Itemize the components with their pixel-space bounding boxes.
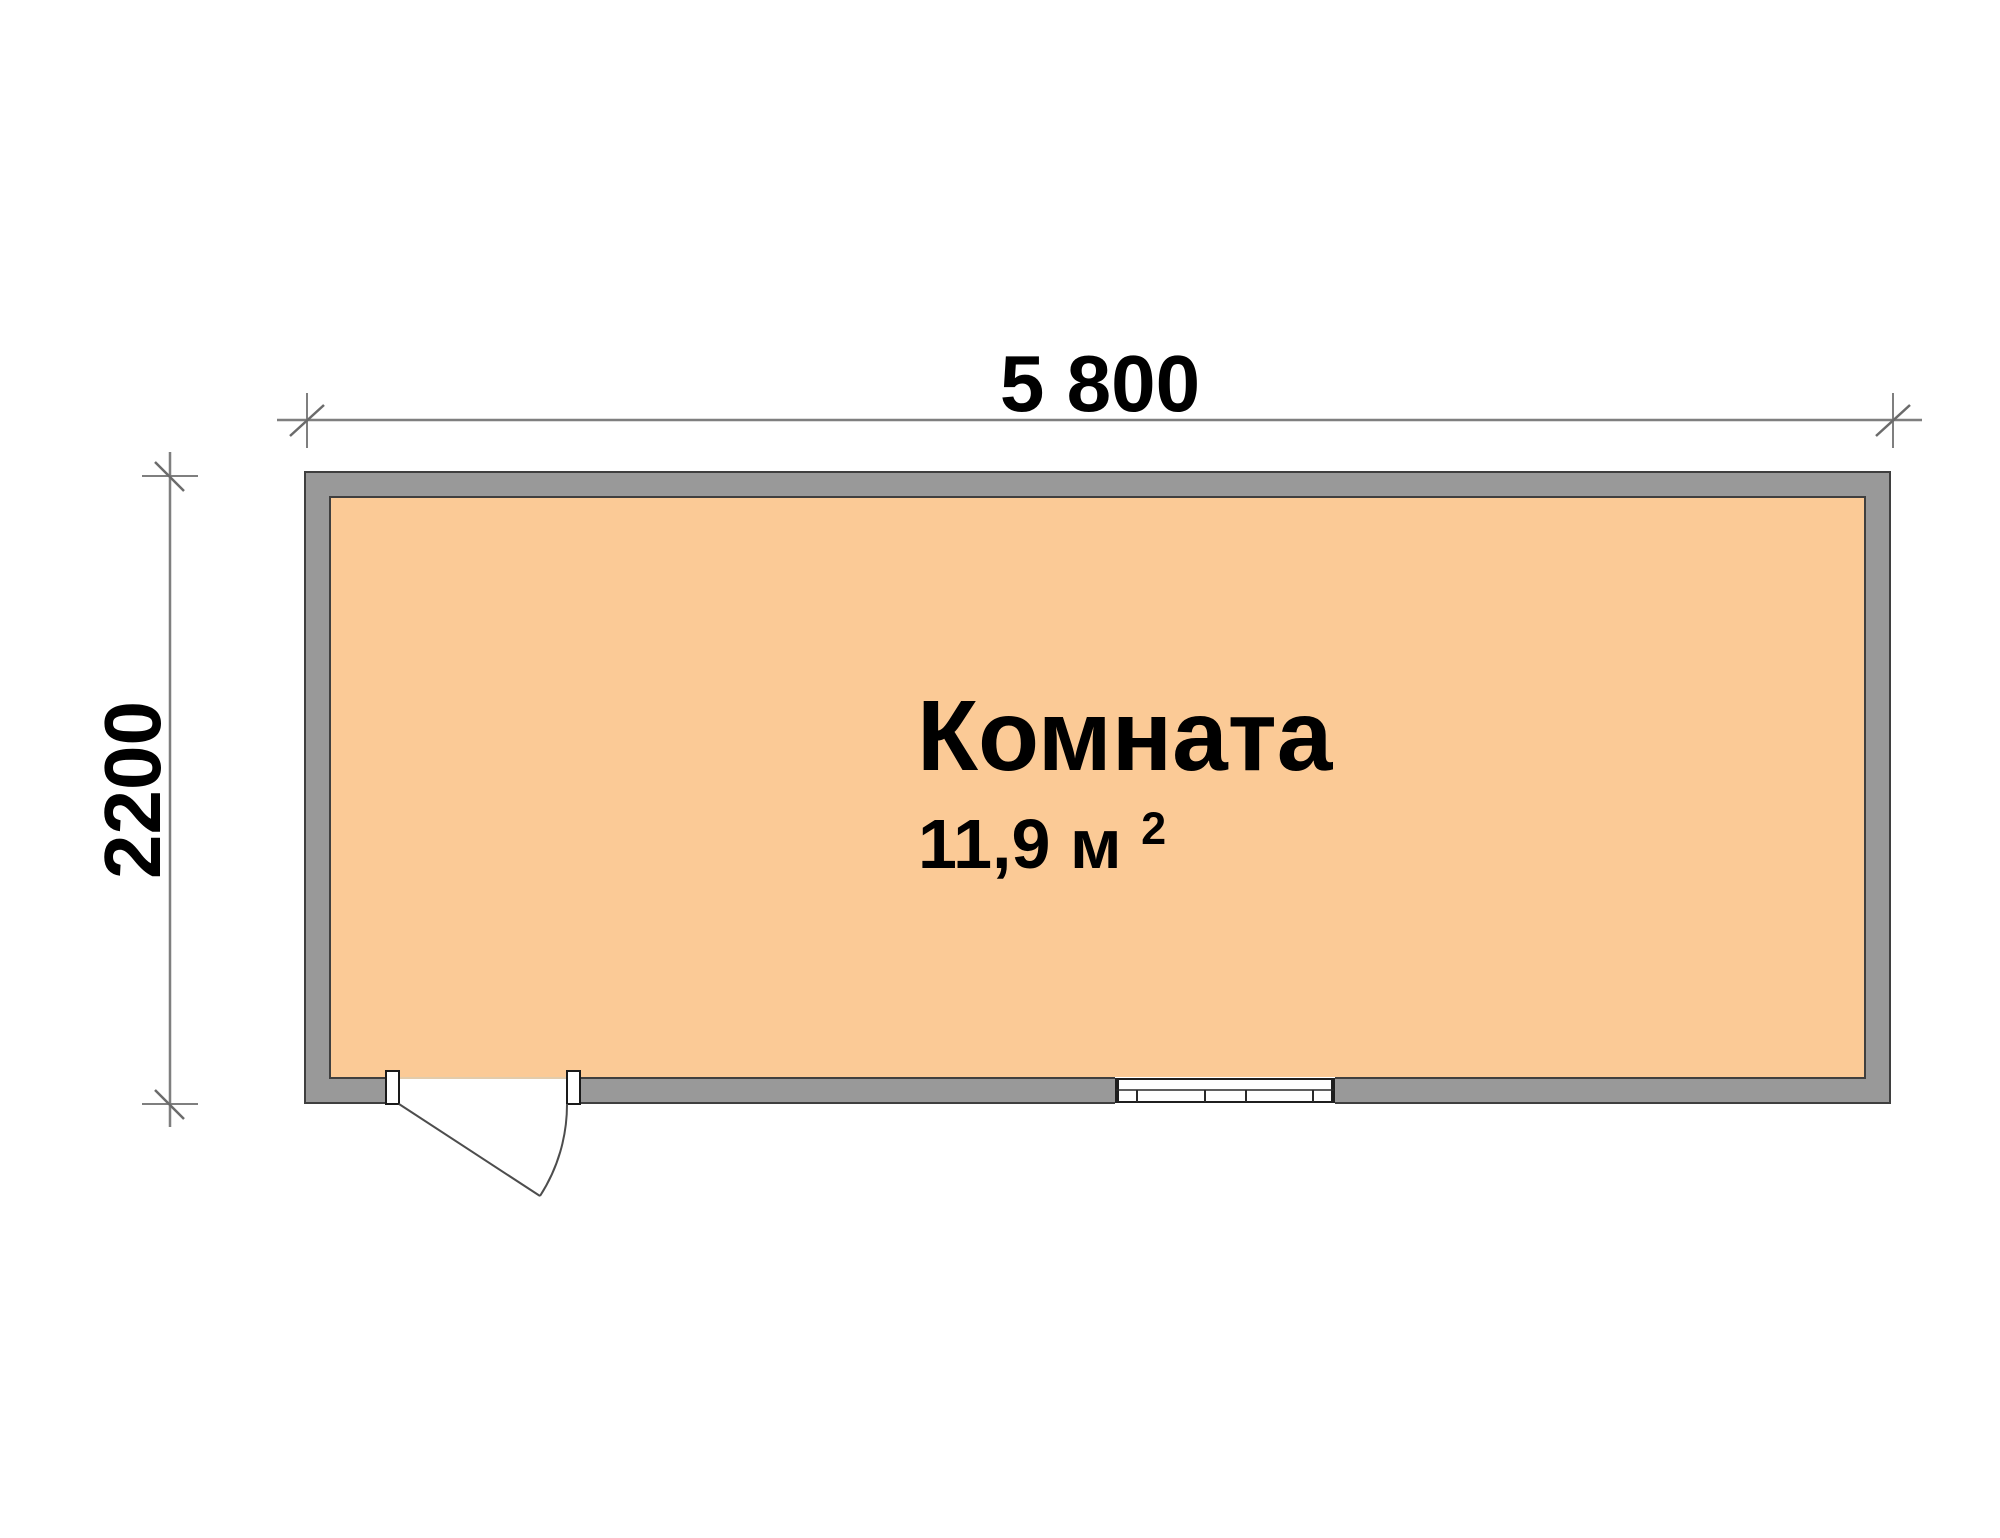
door-jamb-right bbox=[567, 1071, 580, 1104]
dimension-top-width: 5 800 bbox=[277, 339, 1922, 448]
room-area-label: 11,9 м 2 bbox=[918, 803, 1166, 883]
dimension-height-label: 2200 bbox=[88, 701, 177, 879]
door-leaf-line bbox=[399, 1104, 540, 1196]
door-swing-arc bbox=[540, 1104, 567, 1196]
door-symbol bbox=[386, 1071, 580, 1196]
door-opening bbox=[398, 1077, 568, 1106]
dimension-left-height: 2200 bbox=[88, 452, 198, 1127]
room-area-superscript: 2 bbox=[1141, 803, 1166, 854]
room-name-label: Комната bbox=[917, 680, 1334, 792]
floor-plan-canvas: 5 800 2200 Комната 11,9 м 2 bbox=[0, 0, 2000, 1538]
room-area-value: 11,9 м bbox=[918, 805, 1122, 883]
floor-plan-drawing: 5 800 2200 Комната 11,9 м 2 bbox=[0, 0, 2000, 1538]
window-symbol bbox=[1115, 1077, 1335, 1105]
door-jamb-left bbox=[386, 1071, 399, 1104]
dimension-width-label: 5 800 bbox=[1000, 339, 1200, 428]
